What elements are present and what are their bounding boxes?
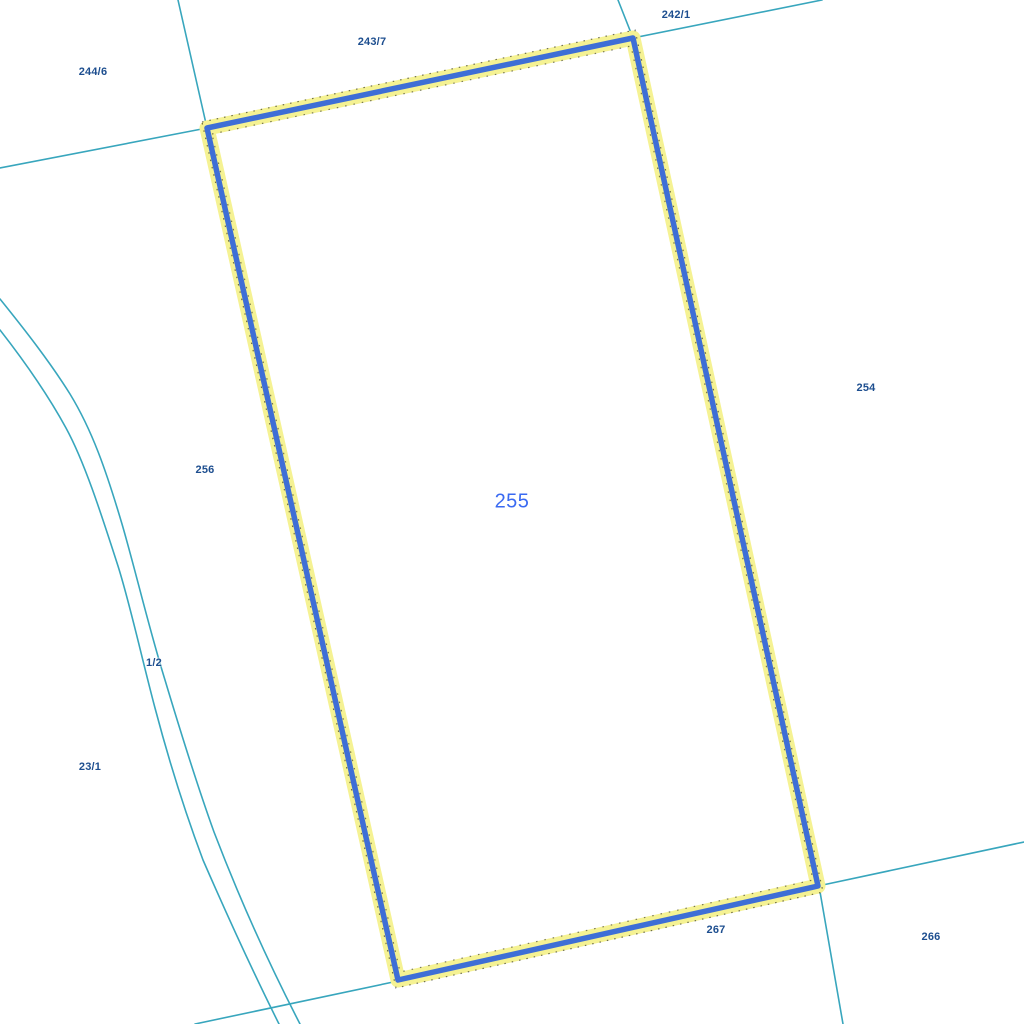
parcel-label-254[interactable]: 254 xyxy=(857,382,876,394)
boundary-line-se-bottom xyxy=(819,886,843,1024)
road-edge-left xyxy=(0,330,279,1024)
parcel-label-23-1[interactable]: 23/1 xyxy=(79,761,101,773)
parcel-label-242-1[interactable]: 242/1 xyxy=(662,9,691,21)
selected-parcel-label[interactable]: 255 xyxy=(495,491,530,514)
boundary-line-nw-left xyxy=(0,128,207,168)
parcel-label-243-7[interactable]: 243/7 xyxy=(358,36,387,48)
boundary-line-se-right xyxy=(818,842,1024,886)
map-canvas[interactable]: 244/6 243/7 242/1 254 256 1/2 23/1 267 2… xyxy=(0,0,1024,1024)
parcel-label-244-6[interactable]: 244/6 xyxy=(79,66,108,78)
parcel-label-1-2[interactable]: 1/2 xyxy=(146,657,162,669)
parcel-label-266[interactable]: 266 xyxy=(922,931,941,943)
boundary-line-nw-top xyxy=(178,0,207,128)
parcel-label-256[interactable]: 256 xyxy=(196,464,215,476)
parcel-label-267[interactable]: 267 xyxy=(707,924,726,936)
